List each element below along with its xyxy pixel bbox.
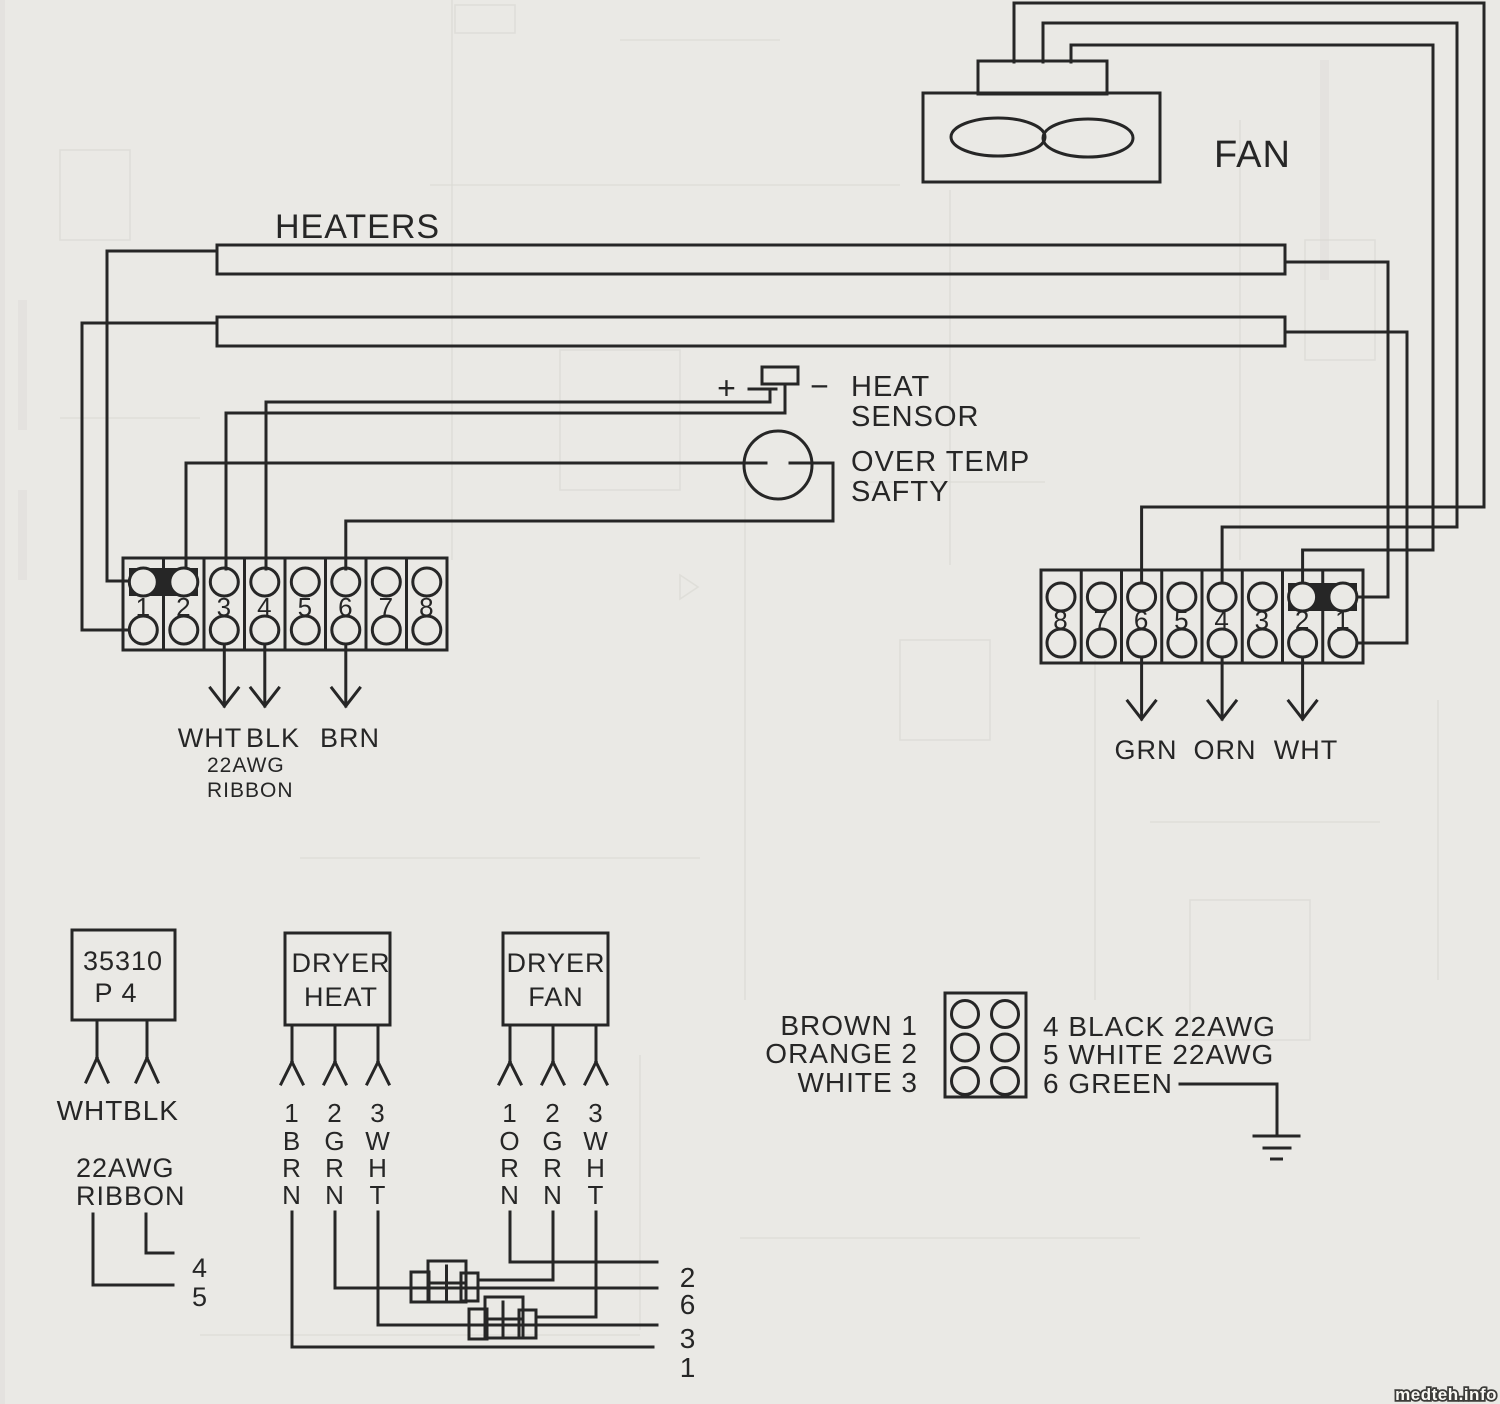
svg-text:BRN: BRN [320,723,380,753]
fan-label: FAN [1214,134,1291,176]
svg-text:R: R [543,1153,563,1183]
svg-text:6 GREEN: 6 GREEN [1043,1068,1173,1099]
right-pin-labels: 4 BLACK 22AWG 5 WHITE 22AWG 6 GREEN [1043,1011,1276,1099]
ribbon-note-1: 22AWG [76,1153,175,1183]
svg-text:4 BLACK 22AWG: 4 BLACK 22AWG [1043,1011,1276,1042]
plug-lead-2 [136,1020,158,1082]
svg-text:6: 6 [338,592,353,622]
plus-sign: + [717,370,737,406]
plug-lead-1 [86,1020,108,1082]
ribbon-note-2: RIBBON [76,1181,186,1211]
svg-text:ORANGE 2: ORANGE 2 [765,1038,918,1069]
lead-color-columns: 1 B R N 2 G R N 3 W H T [282,1098,391,1210]
svg-text:2: 2 [327,1098,342,1128]
svg-text:8: 8 [1053,605,1068,635]
heater-element-1 [217,245,1285,274]
dryer-fan-label-2: FAN [528,982,584,1012]
plus-mark [487,1302,520,1336]
svg-text:BLK: BLK [246,723,300,753]
wht-wire [378,1212,657,1325]
brn-wire [292,1212,653,1347]
dryer-fan: DRYER FAN 1 O R N 2 G R N 3 W H T [479,933,657,1317]
svg-text:5: 5 [1174,605,1189,635]
heater1-left-wire [107,251,217,581]
splice-connector-1 [411,1261,478,1302]
svg-text:2: 2 [1295,605,1310,635]
svg-text:N: N [500,1180,520,1210]
svg-text:3: 3 [1255,605,1270,635]
pin4-wire [146,1214,173,1253]
heat-sensor-wire-b [226,384,785,569]
svg-text:7: 7 [1094,605,1109,635]
orn-wire [510,1212,657,1262]
heat-sensor-label-2: SENSOR [851,401,979,433]
svg-text:T: T [588,1180,605,1210]
wiring-diagram-svg: FAN HEATERS + − HEAT SENSOR OVER TEMP SA… [0,0,1500,1404]
svg-text:ORN: ORN [1194,735,1257,765]
svg-text:3: 3 [217,592,232,622]
svg-text:R: R [500,1153,520,1183]
heat-sensor-wire-a [266,389,770,569]
dryer-heat-label-2: HEAT [304,982,378,1012]
pin4-number: 4 [192,1253,208,1283]
svg-text:N: N [543,1180,563,1210]
svg-text:G: G [542,1126,563,1156]
grn-wire [479,1212,553,1280]
lead-color-columns: 1 O R N 2 G R N 3 W H T [499,1098,608,1210]
svg-text:R: R [282,1153,302,1183]
cell-dividers [164,558,407,650]
pin5-number: 5 [192,1282,208,1312]
svg-text:5 WHITE 22AWG: 5 WHITE 22AWG [1043,1039,1274,1070]
svg-text:3: 3 [588,1098,603,1128]
svg-text:5: 5 [298,592,313,622]
svg-text:1: 1 [502,1098,517,1128]
right-terminal-block: 8 7 6 5 4 3 2 1 GRN ORN WHT [1041,570,1363,765]
over-temp-body [744,431,812,499]
minus-sign: − [810,368,830,404]
svg-text:GRN: GRN [1115,735,1178,765]
fan-wire-2 [1043,23,1457,583]
dryer-heat-label-1: DRYER [291,948,390,978]
heaters-label: HEATERS [275,208,440,246]
watermark: medteh.info [1395,1385,1497,1404]
svg-text:1: 1 [680,1352,697,1383]
wire-arrows [1128,657,1317,719]
svg-text:WHT: WHT [1274,735,1338,765]
plug-designator: P 4 [94,978,137,1008]
svg-text:8: 8 [419,592,434,622]
fan-terminal-box [978,61,1107,94]
over-temp-right-wire [346,463,833,569]
ribbon-note-1: 22AWG [207,754,285,777]
over-temp-label-1: OVER TEMP [851,446,1030,478]
plug-35310: 35310 P 4 WHT BLK 22AWG RIBBON 4 5 [57,930,208,1312]
svg-text:1: 1 [1335,605,1350,635]
svg-text:N: N [325,1180,345,1210]
svg-text:3: 3 [370,1098,385,1128]
svg-text:B: B [283,1126,301,1156]
ground-symbol [1180,1084,1299,1159]
fan-assembly: FAN [923,3,1484,584]
heat-sensor-body [762,367,798,384]
inline-connectors [411,1261,536,1339]
heater1-right-wire [1285,262,1388,597]
svg-text:4: 4 [1214,605,1229,635]
svg-text:R: R [325,1153,345,1183]
svg-text:2: 2 [176,592,191,622]
lead-label-wht: WHT [57,1095,124,1126]
connector-body [945,993,1026,1097]
ribbon-note-2: RIBBON [207,779,294,802]
pin5-wire [93,1214,173,1285]
plus-mark [430,1266,463,1300]
over-temp-label-2: SAFTY [851,476,949,508]
svg-text:W: W [583,1126,609,1156]
svg-text:BROWN 1: BROWN 1 [780,1010,918,1041]
heat-sensor-label-1: HEAT [851,371,930,403]
svg-text:H: H [586,1153,606,1183]
fan-blade-icon [1043,119,1133,157]
left-pin-labels: BROWN 1 ORANGE 2 WHITE 3 [765,1010,918,1098]
fan-blade-icon [951,118,1045,156]
wire-arrows [210,644,359,706]
svg-text:T: T [370,1180,387,1210]
dryer-fan-label-1: DRYER [506,948,605,978]
cell-dividers [1081,570,1323,663]
svg-text:1: 1 [136,592,151,622]
wire-color-labels: GRN ORN WHT [1115,735,1339,765]
heater-element-2 [217,317,1285,346]
over-temp-left-wire [186,463,766,569]
splice-connector-2 [469,1297,536,1339]
svg-text:WHT: WHT [178,723,242,753]
wht-wire [537,1212,596,1317]
svg-text:6: 6 [680,1289,697,1320]
svg-text:H: H [368,1153,388,1183]
plug-part-number: 35310 [83,946,163,976]
lead-label-blk: BLK [123,1095,179,1126]
fan-wire-1 [1014,3,1484,583]
over-temp-safety: OVER TEMP SAFTY [186,431,1030,569]
schematic-page: FAN HEATERS + − HEAT SENSOR OVER TEMP SA… [0,0,1500,1404]
svg-text:3: 3 [680,1323,697,1354]
svg-text:2: 2 [545,1098,560,1128]
left-terminal-block: 1 2 3 4 5 6 7 8 WHT BLK BRN 22AWG RIBBON [123,558,447,802]
svg-text:G: G [324,1126,345,1156]
svg-text:O: O [499,1126,520,1156]
svg-text:WHITE 3: WHITE 3 [797,1067,918,1098]
wire-color-labels: WHT BLK BRN [178,723,380,753]
fan-body [923,93,1160,182]
svg-text:1: 1 [284,1098,299,1128]
grn-wire [335,1212,657,1288]
harness-connector: BROWN 1 ORANGE 2 WHITE 3 4 BLACK 22AWG 5… [765,993,1299,1159]
svg-text:4: 4 [257,592,272,622]
svg-text:W: W [365,1126,391,1156]
svg-text:6: 6 [1134,605,1149,635]
svg-text:7: 7 [379,592,394,622]
bottom-pin-numbers: 2 6 3 1 [680,1262,697,1383]
svg-text:N: N [282,1180,302,1210]
